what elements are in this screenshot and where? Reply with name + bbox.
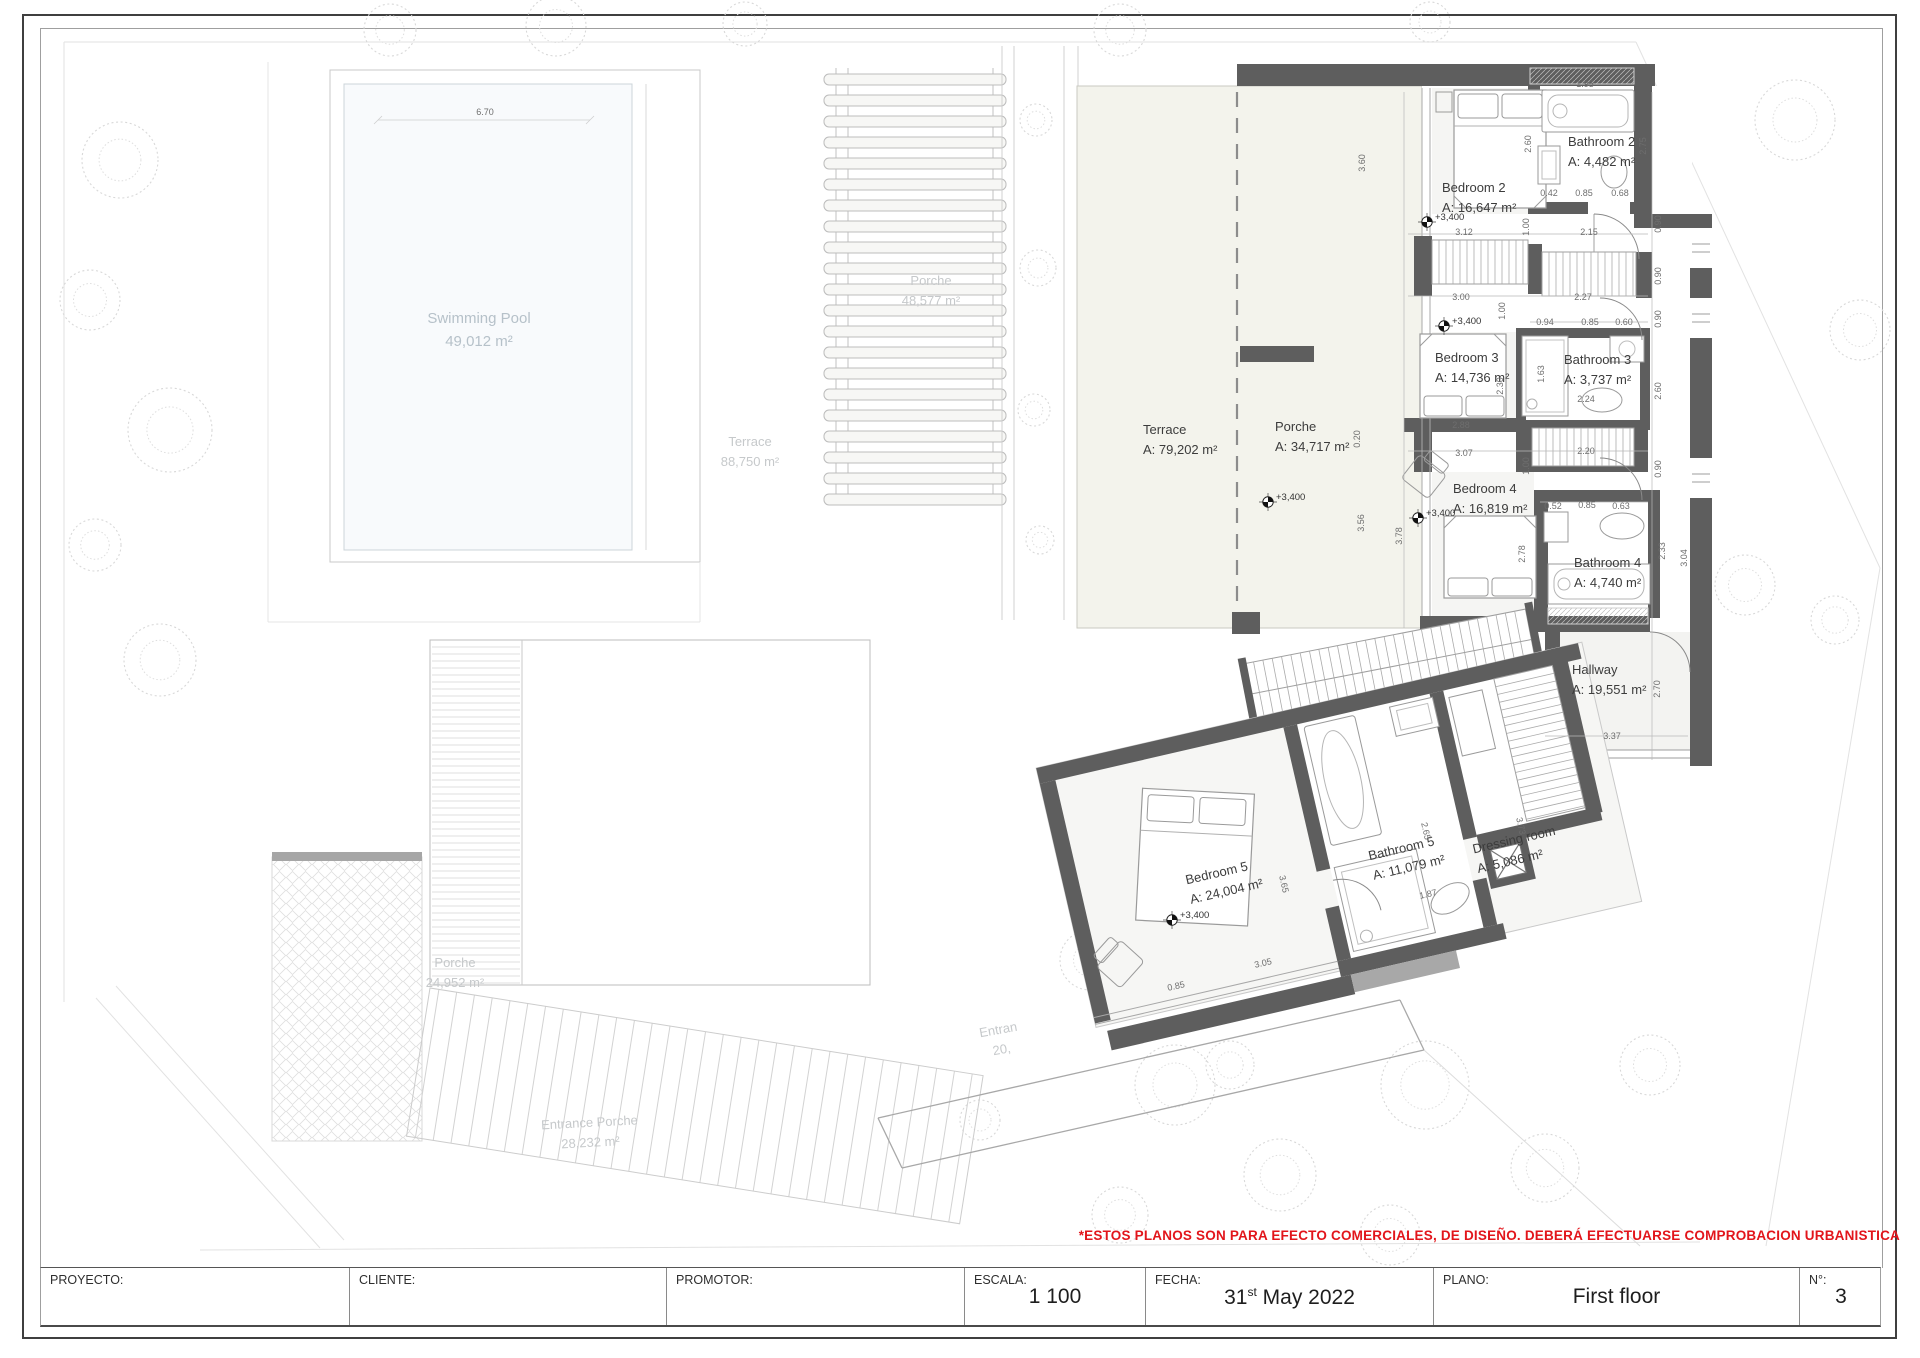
promotor-label: PROMOTOR: <box>676 1273 753 1287</box>
titleblock-field-escala: ESCALA: 1 100 <box>964 1268 1145 1325</box>
titleblock-field-cliente: CLIENTE: <box>349 1268 666 1325</box>
plan-sheet: Bedroom 2A: 16,647 m²Bathroom 2A: 4,482 … <box>0 0 1920 1358</box>
title-block: PROYECTO: CLIENTE: PROMOTOR: ESCALA: 1 1… <box>40 1267 1881 1327</box>
titleblock-field-numero: N°: 3 <box>1799 1268 1882 1325</box>
fecha-rest: May 2022 <box>1263 1286 1355 1309</box>
disclaimer-text: *ESTOS PLANOS SON PARA EFECTO COMERCIALE… <box>1079 1228 1900 1243</box>
plano-value: First floor <box>1434 1285 1799 1309</box>
fecha-ordinal: st <box>1247 1285 1256 1299</box>
titleblock-field-proyecto: PROYECTO: <box>41 1268 349 1325</box>
numero-value: 3 <box>1800 1285 1882 1309</box>
titleblock-field-plano: PLANO: First floor <box>1433 1268 1799 1325</box>
proyecto-label: PROYECTO: <box>50 1273 123 1287</box>
escala-value: 1 100 <box>965 1285 1145 1309</box>
titleblock-field-fecha: FECHA: 31st May 2022 <box>1145 1268 1433 1325</box>
titleblock-field-promotor: PROMOTOR: <box>666 1268 964 1325</box>
fecha-value: 31st May 2022 <box>1146 1285 1433 1310</box>
floor-plan-drawing <box>0 0 1920 1358</box>
cliente-label: CLIENTE: <box>359 1273 415 1287</box>
fecha-day: 31 <box>1224 1286 1247 1309</box>
